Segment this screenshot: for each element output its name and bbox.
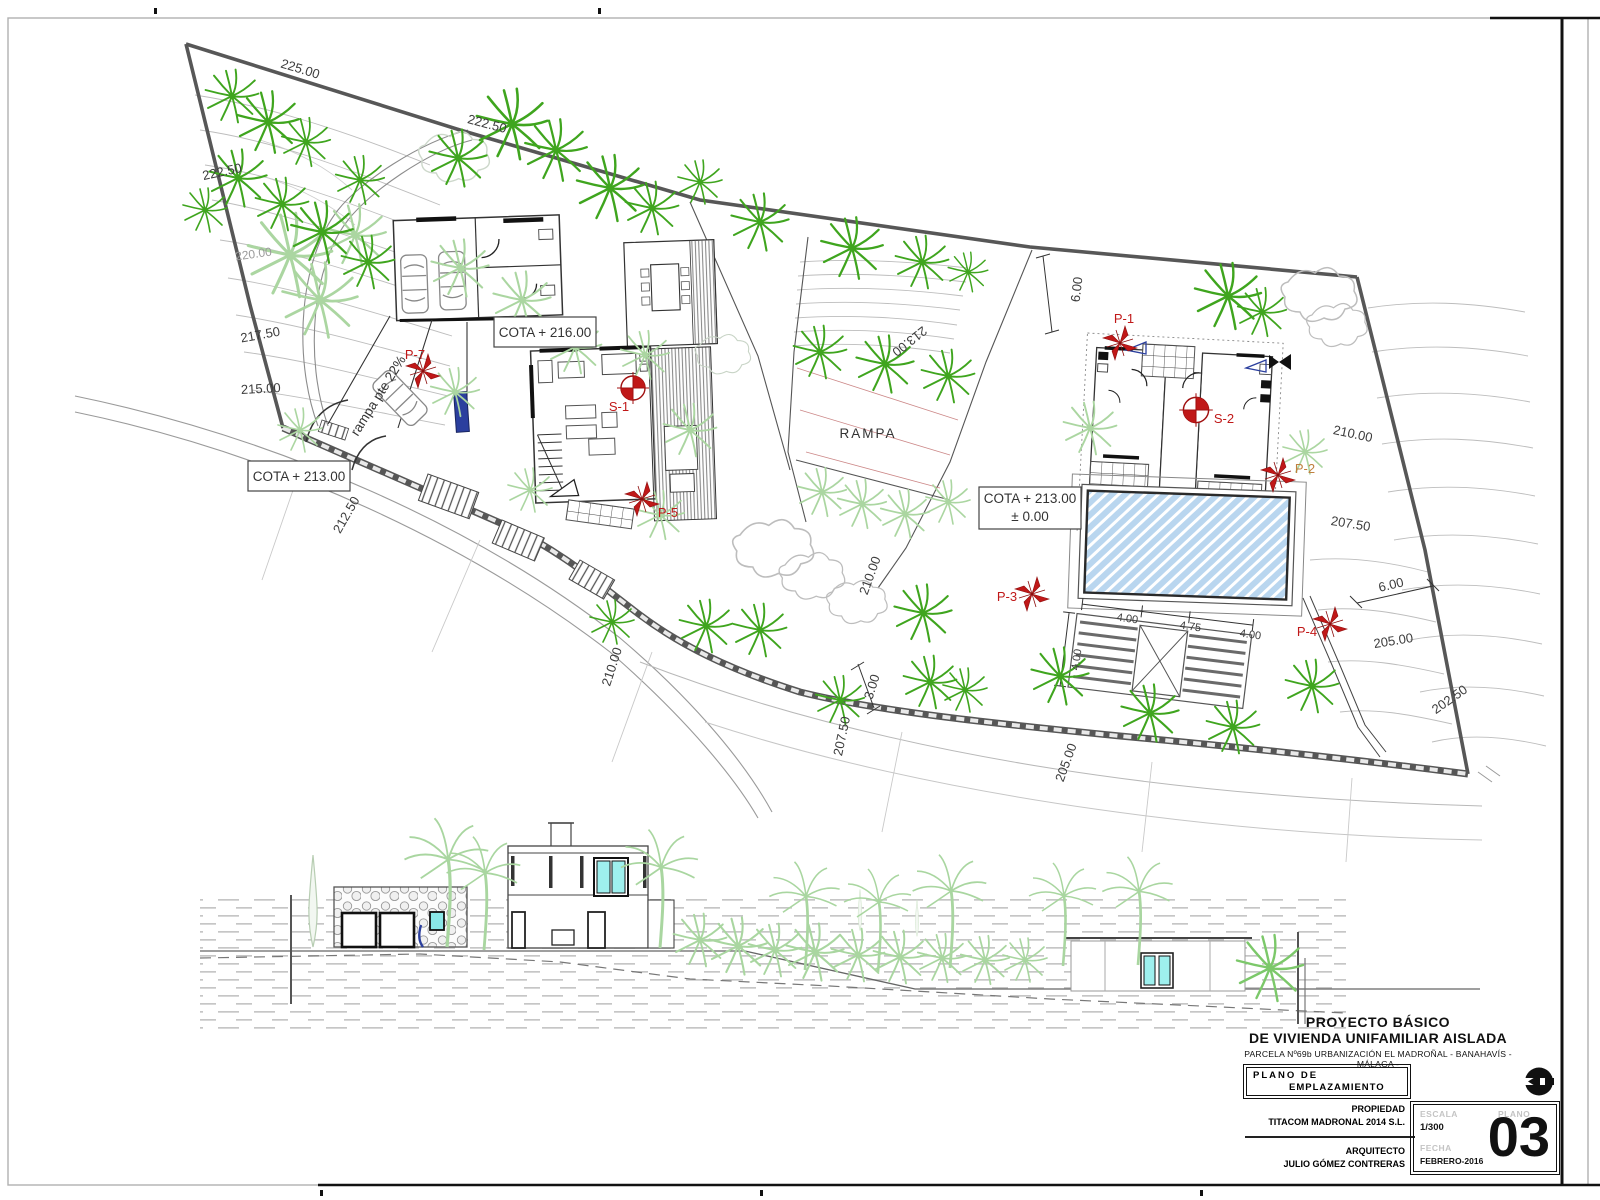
contour-label: 213.00 bbox=[889, 323, 930, 359]
cota-pool-sublabel: ± 0.00 bbox=[1011, 509, 1048, 524]
plan-title-box: PLANO DE EMPLAZAMIENTO bbox=[1243, 1064, 1411, 1099]
architect-logo bbox=[1524, 1066, 1554, 1097]
date-label: FECHA bbox=[1420, 1143, 1452, 1153]
marker-label-p5: P-5 bbox=[658, 505, 678, 520]
drawing-sheet: 225.00 222.50 222.50 220.00 217.50 215.0… bbox=[0, 0, 1600, 1200]
fold-mark bbox=[1200, 1190, 1203, 1196]
fold-mark bbox=[598, 8, 601, 14]
plan-title-line1: PLANO DE bbox=[1253, 1070, 1318, 1081]
contour-lines bbox=[195, 95, 1546, 746]
contour-label: 205.00 bbox=[1052, 741, 1080, 783]
title-divider bbox=[1245, 1136, 1415, 1138]
marker-label-s1: S-1 bbox=[609, 399, 629, 414]
architect-value: JULIO GÓMEZ CONTRERAS bbox=[1243, 1159, 1405, 1169]
marker-label-p3: P-3 bbox=[997, 589, 1017, 604]
contour-label: 210.00 bbox=[1332, 422, 1374, 445]
contour-label: 217.50 bbox=[239, 324, 281, 346]
contour-label: 207.50 bbox=[1330, 513, 1372, 534]
plan-title-box-inner: PLANO DE EMPLAZAMIENTO bbox=[1246, 1067, 1408, 1096]
scale-plan-box-inner: ESCALA PLANO 1/300 FECHA FEBRERO-2016 03 bbox=[1413, 1104, 1557, 1172]
scale-label: ESCALA bbox=[1420, 1109, 1458, 1119]
plot-division-lines bbox=[690, 202, 1032, 588]
plan-title-line2: EMPLAZAMIENTO bbox=[1289, 1082, 1385, 1093]
dimension-label: 6.00 bbox=[1068, 276, 1086, 303]
owner-value: TITACOM MADRONAL 2014 S.L. bbox=[1243, 1117, 1405, 1127]
date-value: FEBRERO-2016 bbox=[1420, 1156, 1483, 1166]
project-title-line1: PROYECTO BÁSICO bbox=[1228, 1014, 1528, 1030]
fold-mark bbox=[320, 1190, 323, 1196]
contour-label: 202.50 bbox=[1429, 682, 1470, 717]
contour-label: 220.00 bbox=[234, 245, 273, 264]
project-title-line2: DE VIVIENDA UNIFAMILIAR AISLADA bbox=[1228, 1030, 1528, 1046]
contour-label: 225.00 bbox=[279, 56, 321, 82]
contour-label: 210.00 bbox=[856, 554, 884, 596]
cota-main-label: COTA + 216.00 bbox=[499, 325, 591, 340]
marker-label-p7: P-7 bbox=[405, 347, 425, 362]
marker-label-s2: S-2 bbox=[1214, 411, 1234, 426]
survey-point-p4 bbox=[1313, 607, 1347, 641]
rampa-label: RAMPA bbox=[839, 426, 896, 441]
architect-label: ARQUITECTO bbox=[1243, 1146, 1405, 1156]
fold-mark bbox=[154, 8, 157, 14]
dimension-label: 6.00 bbox=[1377, 574, 1405, 594]
survey-point-p3 bbox=[1015, 577, 1049, 611]
marker-label-p1: P-1 bbox=[1114, 311, 1134, 326]
cota-entrance-label: COTA + 213.00 bbox=[253, 469, 345, 484]
cota-pool-label: COTA + 213.00 bbox=[984, 491, 1076, 506]
plan-number: 03 bbox=[1488, 1109, 1550, 1165]
window bbox=[430, 912, 444, 930]
scale-value: 1/300 bbox=[1420, 1122, 1444, 1133]
title-block-header: PROYECTO BÁSICO DE VIVIENDA UNIFAMILIAR … bbox=[1228, 1014, 1528, 1069]
dimension-label: 3.00 bbox=[861, 672, 883, 701]
contour-label: 205.00 bbox=[1372, 630, 1414, 651]
marker-label-p4: P-4 bbox=[1297, 624, 1317, 639]
fold-mark bbox=[760, 1190, 763, 1196]
elevation-drawing bbox=[200, 818, 1480, 1030]
contour-label: 207.50 bbox=[830, 715, 853, 757]
owner-label: PROPIEDAD bbox=[1243, 1104, 1405, 1114]
contour-label: 210.00 bbox=[598, 645, 625, 687]
elevation-villa bbox=[508, 823, 674, 948]
contour-label: 215.00 bbox=[241, 380, 281, 397]
pool bbox=[1068, 474, 1307, 616]
marker-label-p2: P-2 bbox=[1295, 461, 1315, 476]
contour-label: 212.50 bbox=[330, 494, 363, 536]
scale-plan-box: ESCALA PLANO 1/300 FECHA FEBRERO-2016 03 bbox=[1410, 1101, 1560, 1175]
